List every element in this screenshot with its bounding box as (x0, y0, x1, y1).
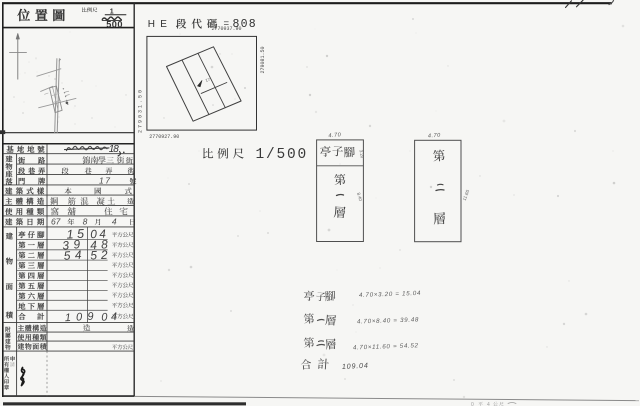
svg-text:7: 7 (56, 216, 61, 226)
svg-text:54: 54 (63, 247, 86, 263)
svg-text:109.04: 109.04 (342, 361, 369, 371)
svg-text:7: 7 (105, 175, 110, 185)
svg-text:279081.50: 279081.50 (260, 46, 266, 73)
svg-text:1/500: 1/500 (256, 147, 309, 163)
svg-text:4.70: 4.70 (428, 133, 442, 140)
svg-text:0: 0 (471, 402, 474, 406)
svg-text:8: 8 (83, 216, 88, 226)
svg-text:H E: H E (148, 19, 168, 30)
svg-text:4: 4 (487, 402, 490, 406)
svg-text:04: 04 (101, 311, 121, 324)
svg-text:500: 500 (106, 19, 123, 29)
svg-text:8: 8 (113, 144, 119, 155)
svg-text:4.70: 4.70 (328, 132, 342, 139)
svg-text:1: 1 (99, 175, 104, 185)
svg-text:4: 4 (112, 216, 117, 226)
svg-text:279031.50: 279031.50 (138, 88, 144, 133)
svg-text:52: 52 (90, 247, 112, 262)
svg-text:2770937.90: 2770937.90 (212, 26, 242, 32)
svg-text:2770927.90: 2770927.90 (149, 134, 179, 140)
svg-text:109: 109 (65, 310, 100, 324)
